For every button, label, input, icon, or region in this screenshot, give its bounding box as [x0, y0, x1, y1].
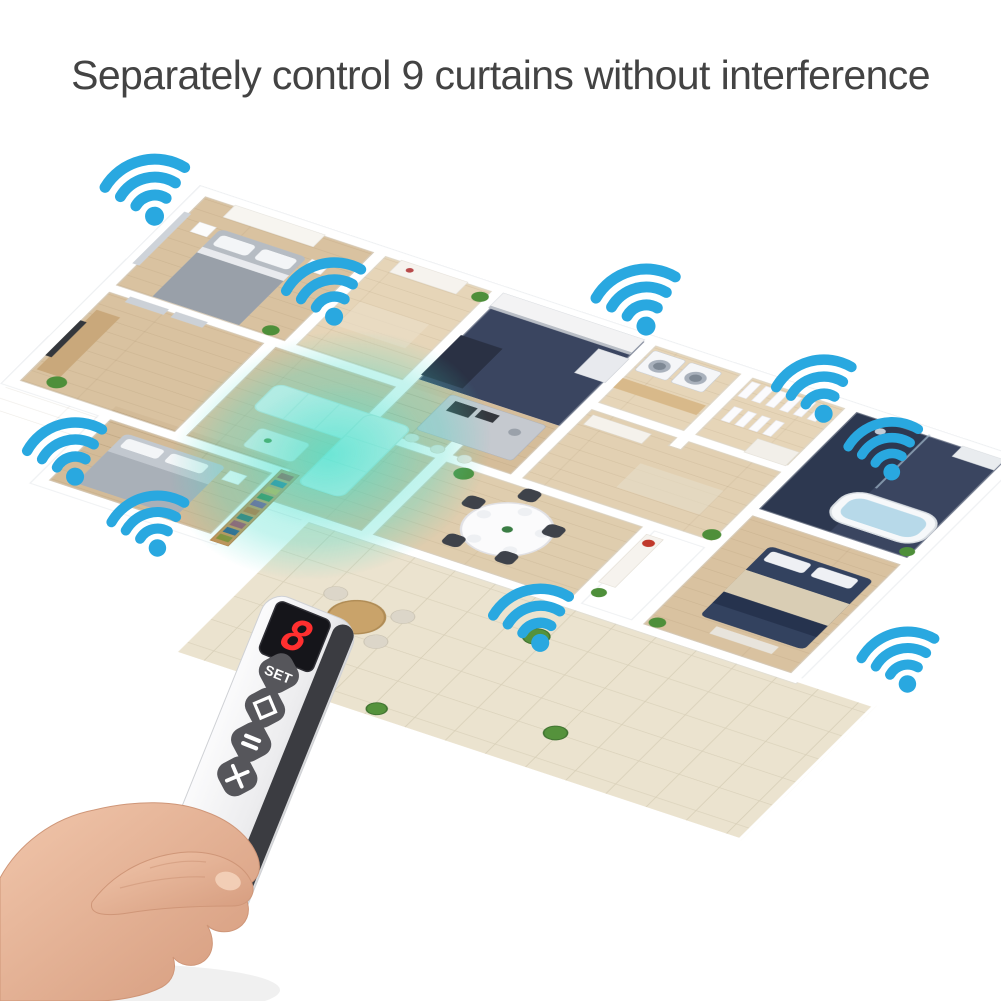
hand-with-remote: 8 SET: [0, 0, 1001, 1001]
headline: Separately control 9 curtains without in…: [0, 52, 1001, 99]
